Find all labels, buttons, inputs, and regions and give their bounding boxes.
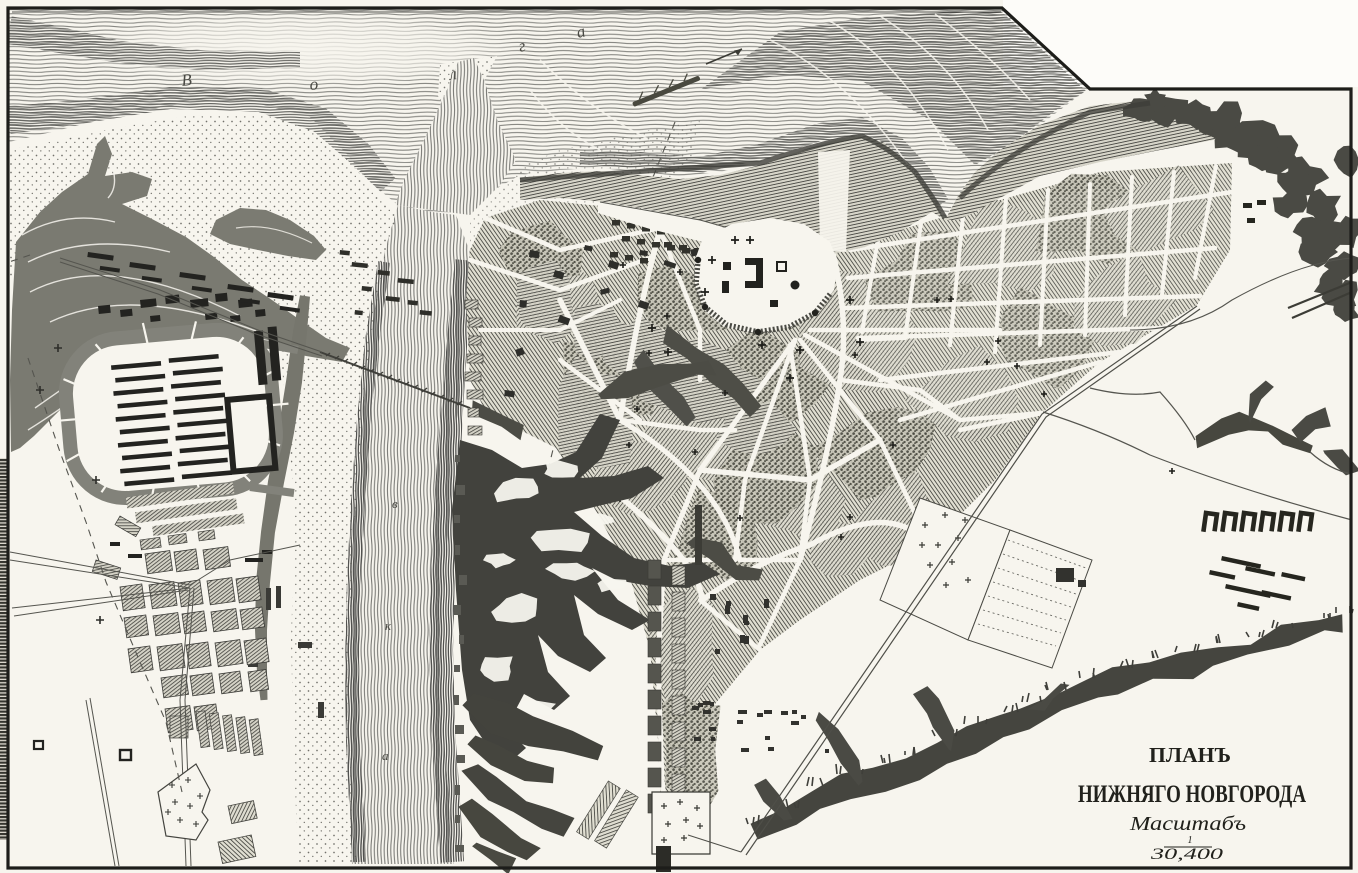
svg-text:1: 1 — [1188, 835, 1193, 846]
svg-text:НИЖНЯГО НОВГОРОДА: НИЖНЯГО НОВГОРОДА — [1078, 781, 1306, 808]
svg-text:о: о — [309, 74, 319, 94]
svg-text:ПЛАНЪ: ПЛАНЪ — [1149, 743, 1231, 767]
svg-text:Масштабъ: Масштабъ — [1129, 813, 1246, 835]
svg-text:к: к — [385, 618, 392, 633]
svg-text:30,400: 30,400 — [1149, 846, 1223, 863]
svg-text:а: а — [382, 748, 389, 763]
svg-text:в: в — [392, 496, 398, 511]
